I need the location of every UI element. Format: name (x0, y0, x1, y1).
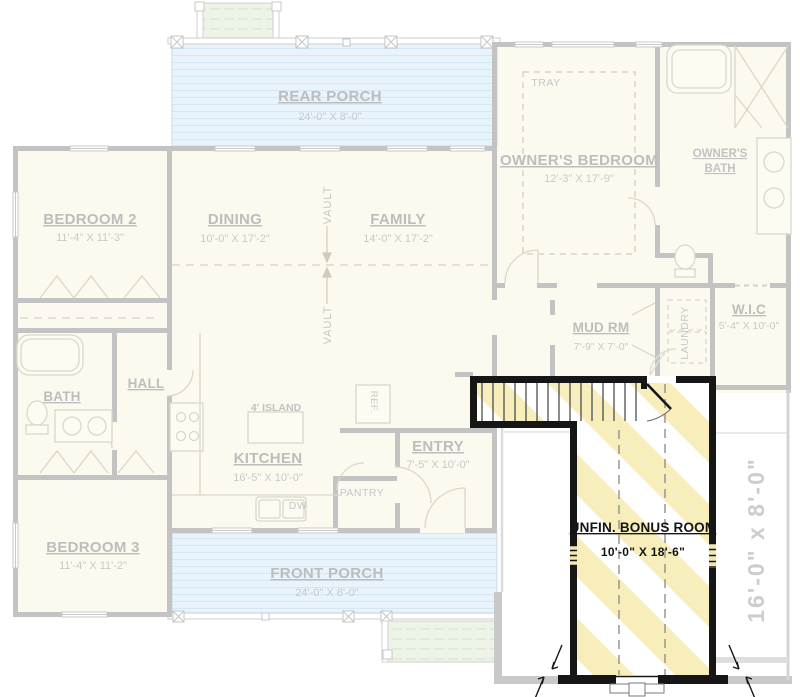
room-label-laundry: LAUNDRY (679, 306, 691, 360)
room-dims-kitchen: 16'-5" X 10'-0" (233, 472, 303, 484)
bonus-bottom-window (610, 675, 664, 696)
room-label-rear-porch: REAR PORCH (278, 88, 382, 105)
room-label-bonus: UNFIN. BONUS ROOM (570, 520, 717, 535)
room-dims-wic: 5'-4" X 10'-0" (719, 320, 780, 332)
rear-steps (199, 3, 277, 42)
room-label-bath: BATH (43, 389, 80, 404)
side-deck-dims: 16'-0" x 8'-0" (743, 457, 769, 623)
rear-porch-rail (168, 38, 500, 44)
room-label-owners-bath-1: OWNER'S (693, 148, 748, 160)
floorplan-canvas: REAR PORCH 24'-0" X 8'-0" TRAY OWNER'S B… (0, 0, 800, 697)
room-dims-mud-rm: 7'-9" X 7'-0" (574, 341, 629, 353)
front-porch-rail (168, 613, 500, 619)
room-label-bedroom2: BEDROOM 2 (43, 211, 137, 228)
island-symbol (248, 412, 303, 443)
room-label-front-porch: FRONT PORCH (270, 565, 383, 582)
room-dims-bedroom2: 11'-4" X 11'-3" (56, 232, 124, 244)
room-label-owners-bedroom: OWNER'S BEDROOM (500, 152, 658, 169)
floorplan-svg: REAR PORCH 24'-0" X 8'-0" TRAY OWNER'S B… (0, 0, 800, 697)
room-label-bedroom3: BEDROOM 3 (46, 539, 140, 556)
owners-tub-symbol (667, 45, 731, 93)
label-ref: REF. (368, 391, 379, 414)
room-dims-entry: 7'-5" X 10'-0" (406, 459, 469, 471)
room-dims-family: 14'-0" X 17'-2" (363, 233, 433, 245)
room-dims-front-porch: 24'-0" X 8'-0" (295, 587, 358, 599)
room-label-hall: HALL (128, 376, 165, 391)
room-label-kitchen: KITCHEN (234, 450, 303, 467)
owners-toilet-symbol (675, 245, 695, 269)
label-island: 4' ISLAND (251, 402, 302, 414)
room-label-wic: W.I.C (732, 302, 766, 317)
room-dims-dining: 10'-0" X 17'-2" (200, 233, 270, 245)
vault-label-top: VAULT (322, 186, 334, 225)
front-steps (384, 621, 497, 662)
room-label-owners-bath-2: BATH (704, 163, 735, 175)
room-label-pantry: PANTRY (340, 487, 385, 499)
room-label-tray: TRAY (531, 77, 560, 89)
room-dims-bonus: 10'-0" X 18'-6" (601, 545, 685, 559)
bathtub-symbol (17, 335, 83, 375)
bonus-room-highlight: UNFIN. BONUS ROOM 10'-0" X 18'-6" 16'-0"… (470, 349, 792, 697)
room-label-entry: ENTRY (412, 438, 464, 455)
room-dims-bedroom3: 11'-4" X 11'-2" (59, 560, 127, 572)
toilet-symbol (27, 401, 47, 425)
stove-symbol (170, 403, 203, 451)
label-dw: DW (289, 500, 308, 512)
room-dims-rear-porch: 24'-0" X 8'-0" (298, 111, 361, 123)
room-label-family: FAMILY (370, 211, 425, 228)
room-dims-owners-bedroom: 12'-3" X 17'-9" (544, 173, 614, 185)
vault-label-bottom: VAULT (322, 306, 334, 345)
room-label-dining: DINING (208, 211, 262, 228)
rear-porch-area (168, 2, 500, 146)
room-label-mud-rm: MUD RM (573, 320, 630, 335)
